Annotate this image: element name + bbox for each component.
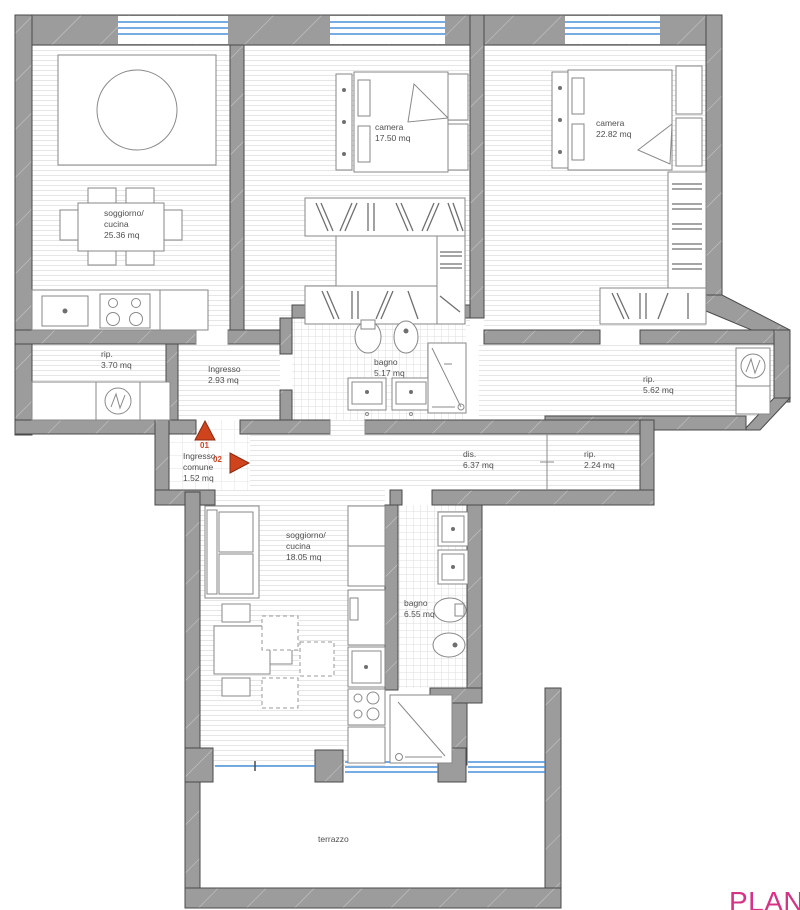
entry-marker-02-icon xyxy=(228,450,252,476)
room-label-camera2: camera22.82 mq xyxy=(596,118,631,140)
room-label-soggiorno-lower: soggiorno/cucina18.05 mq xyxy=(286,530,326,563)
rug xyxy=(58,55,216,165)
room-label-rip2: rip.5.62 mq xyxy=(643,374,674,396)
room-label-camera1: camera17.50 mq xyxy=(375,122,410,144)
nightstand xyxy=(676,118,702,166)
room-label-bagno1: bagno5.17 mq xyxy=(374,357,405,379)
entry-marker-01-number: 01 xyxy=(200,441,209,450)
room-label-rip3: rip.2.24 mq xyxy=(584,449,615,471)
room-label-bagno2: bagno6.55 mq xyxy=(404,598,435,620)
bathroom-sink xyxy=(348,378,386,416)
room-label-soggiorno-upper: soggiorno/cucina25.36 mq xyxy=(104,208,144,241)
floor-plan-page: soggiorno/cucina25.36 mq camera17.50 mq … xyxy=(0,0,800,910)
sofa xyxy=(205,506,259,598)
kitchen-counter xyxy=(32,290,208,330)
stove xyxy=(348,689,385,725)
kitchen-sink xyxy=(42,296,88,326)
shower xyxy=(428,343,466,413)
nightstand xyxy=(448,74,468,120)
window-top-left xyxy=(118,16,228,44)
window-terrace-right xyxy=(468,762,545,772)
bidet xyxy=(394,321,418,353)
window-top-right xyxy=(565,16,660,44)
shower xyxy=(390,695,452,763)
room-label-rip1: rip.3.70 mq xyxy=(101,349,132,371)
toilet xyxy=(355,320,381,353)
closet-rip1 xyxy=(32,382,170,420)
room-label-ingresso: Ingresso2.93 mq xyxy=(208,364,241,386)
bidet xyxy=(433,633,465,657)
room-label-ingresso-comune: Ingressocomune1.52 mq xyxy=(183,451,216,484)
floor-passage xyxy=(215,490,385,505)
room-label-terrazzo: terrazzo xyxy=(318,834,349,845)
kitchen-sink xyxy=(348,647,385,687)
bathroom-sink xyxy=(392,378,430,416)
toilet xyxy=(434,598,466,622)
stove xyxy=(100,294,150,328)
entry-marker-01-icon xyxy=(192,419,218,443)
entry-marker-02-number: 02 xyxy=(213,455,222,464)
bathroom-sink xyxy=(438,512,468,546)
watermark-planimetria: PLANIM xyxy=(729,886,800,910)
nightstand xyxy=(676,66,702,114)
kitchen-column-lower xyxy=(348,506,385,763)
bathroom-sink xyxy=(438,550,468,584)
closet-rip2 xyxy=(736,348,770,414)
nightstand xyxy=(448,124,468,170)
room-label-dis: dis.6.37 mq xyxy=(463,449,494,471)
window-top-middle xyxy=(330,16,445,44)
